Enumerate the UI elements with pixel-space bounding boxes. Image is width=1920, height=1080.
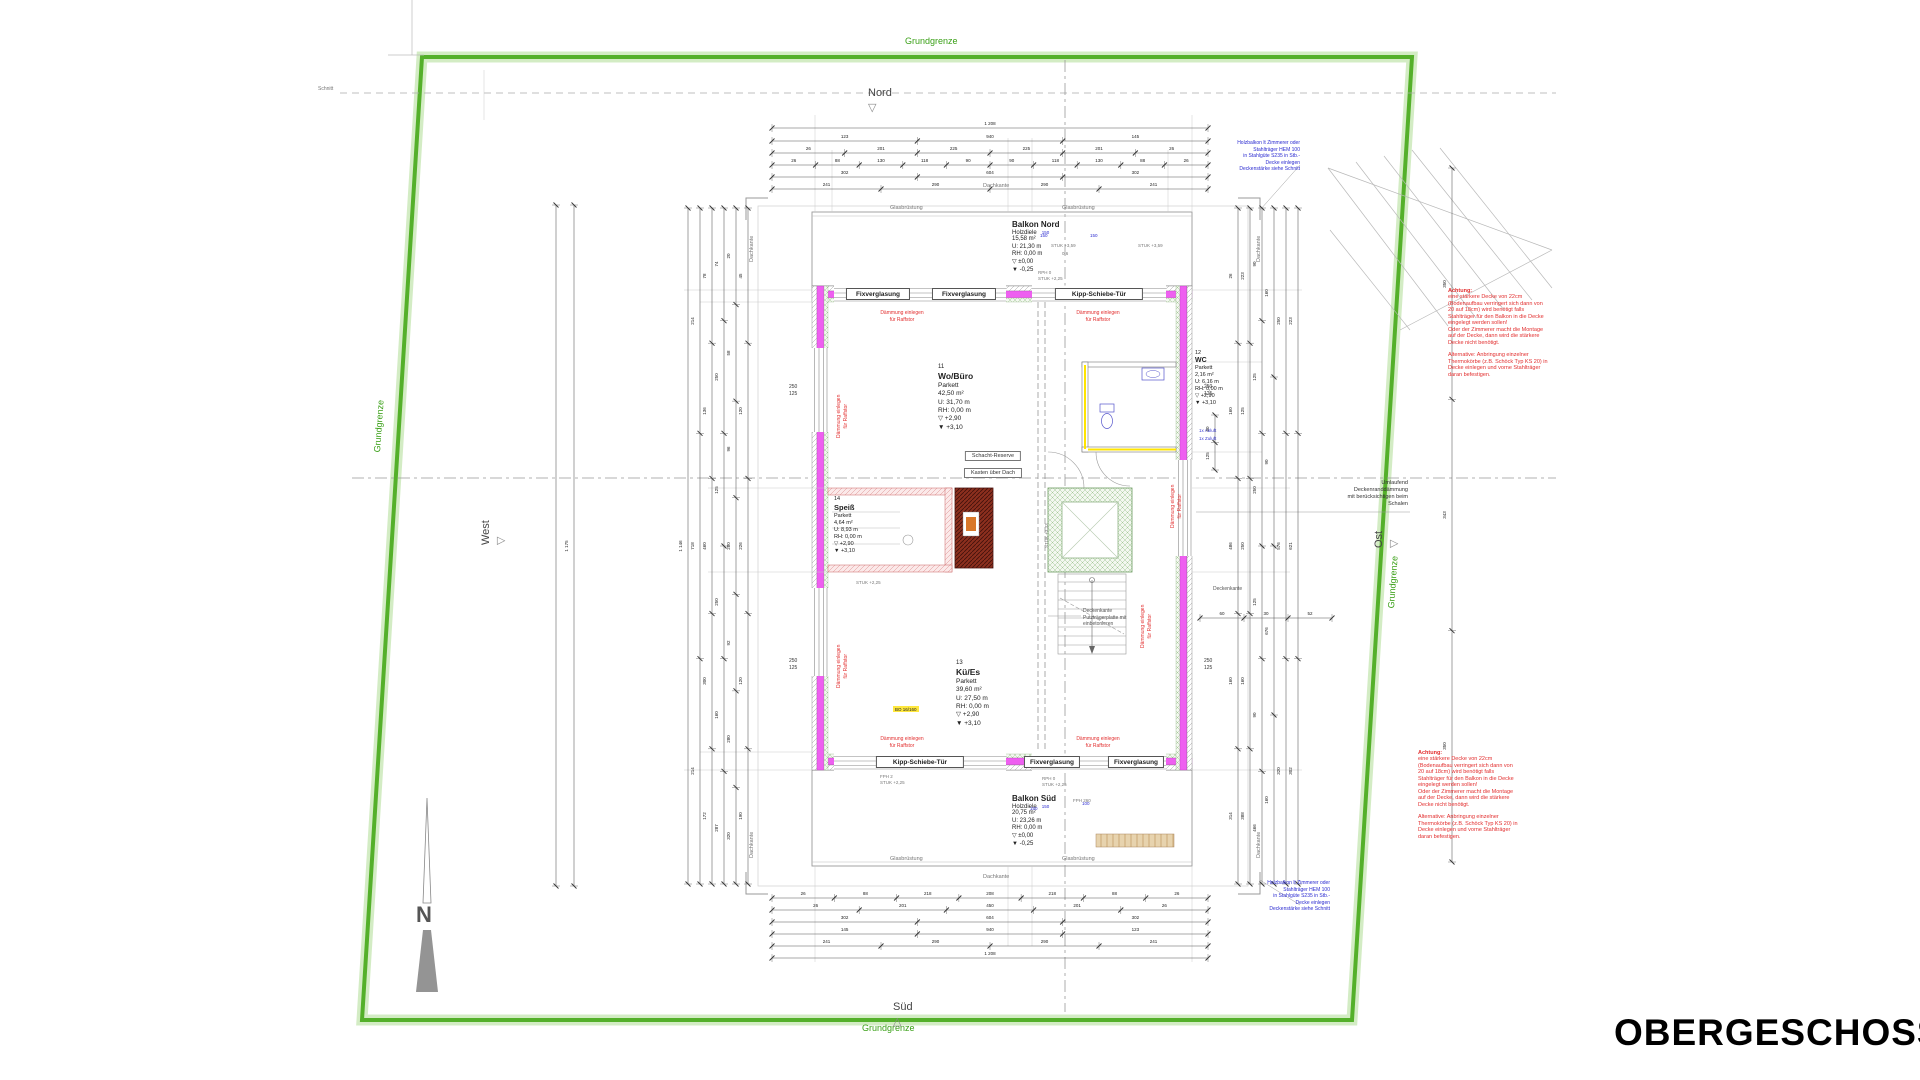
dimension-label: 190 [738,813,744,821]
east-label: Ost [1373,531,1385,548]
stuk-225: STUK +2,25 [856,580,881,586]
num-100: 100 [1082,801,1090,807]
room-name: Wo/Büro [938,371,973,381]
achtung-body: eine stärkere Decke von 22cm (Bodenaufba… [1448,294,1570,346]
dimension-label: 1 208 [984,951,995,957]
north-marker-icon: ▽ [868,102,876,114]
dimension-label: 160 [1240,677,1246,685]
rph-stuk-bottom: RPH 0 STUK +2,25 [1042,776,1067,788]
kasten-box: Kasten über Dach [964,468,1022,478]
glasbruestung-sw: Glasbrüstung [890,856,923,863]
dimension-label: 223 [1288,317,1294,325]
dimension-label: 1 208 [984,121,995,127]
dimension-label: 226 [738,542,744,550]
dimension-label: 343 [1442,511,1448,519]
wc-room [1082,362,1176,486]
dimension-label: 26 [813,903,818,909]
daemmung-note-3: Dämmung einlegen für Raffstor [880,736,923,749]
dimension-label: 118 [1052,158,1059,164]
west-label: West [480,520,492,545]
dimension-label: 90 [1252,712,1258,717]
dimension-label: 225 [1023,146,1031,152]
dimension-label: 201 [1073,903,1081,909]
dimension-label: 940 [986,927,994,933]
achtung-note-2: Achtung: eine stärkere Decke von 22cm (B… [1418,750,1540,840]
dimension-label: 388 [1240,813,1246,821]
room-name: Speiß [834,503,862,512]
dimension-label: 160 [1264,796,1270,804]
shaft [1048,488,1132,572]
dimension-label: 466 [1252,824,1258,832]
dimension-label: 172 [702,813,708,821]
zuluft-label: 1x Zuluft [1199,436,1216,442]
floor-plan-linework [0,0,1920,1080]
dimension-label: 280 [726,542,732,550]
south-label: Süd [893,1001,913,1013]
dimension-label: 460 [702,542,708,550]
dimension-label: 250 [1276,317,1282,325]
glasbruestung-ne: Glasbrüstung [1062,205,1095,212]
dimension-label: 125 [1252,599,1258,607]
chimney [955,488,993,568]
glasbruestung-nw: Glasbrüstung [890,205,923,212]
compass-west: West ▽ [465,520,508,545]
dimension-label: 92 [726,640,732,645]
north-arrow-letter: N [416,902,432,928]
dimension-label: 223 [1240,272,1246,280]
dimension-label: 486 [1228,542,1234,550]
dimension-label: 26 [1162,903,1167,909]
balcony-bench [1096,834,1174,847]
room-name: Kü/Es [956,667,989,677]
dimension-label: 136 [702,407,708,415]
wc-sink [1142,368,1164,380]
dim-250-125-4: 250 125 [1204,658,1212,671]
dim-250-125-1: 250 125 [789,384,797,397]
north-label: Nord [868,87,892,99]
dimension-label: 125 [714,486,720,494]
schnitt-label: Schnitt [318,86,333,93]
dachkante-right-top: Dachkante [1256,236,1263,262]
north-arrow [416,798,438,992]
achtung-alternative: Alternative: Anbringung einzelner Thermo… [1448,352,1570,378]
bo-chip: BO 16/160 [893,706,919,712]
dimension-label: 302 [1132,915,1140,921]
stuk-359-2: STUK +3,59 [1138,243,1163,249]
dimension-label: 30 [1263,611,1268,617]
property-boundary [362,57,1412,1020]
dimension-label: 120 [738,407,744,415]
wc-toilet [1100,404,1114,412]
dimension-label: 125 [1240,407,1246,415]
num-150-1: 150 [1040,233,1048,239]
dim-250-125-2: 250 125 [789,658,797,671]
dimension-label: 250 [714,599,720,607]
stuk-333: STUK +3,33 [1044,523,1050,548]
balcony-north [812,212,1192,286]
dimension-label: 302 [841,915,849,921]
dimension-label: 26 [801,891,806,897]
dimension-label: 160 [1264,289,1270,297]
dimension-label: 90 [966,158,971,164]
daemmung-rot-2: Dämmung einlegen für Raffstor [836,645,849,688]
dimension-label: 120 [738,677,744,685]
dimension-label: 90 [1264,459,1270,464]
dimension-label: 676 [1264,627,1270,635]
dachkante-left-bottom: Dachkante [749,832,756,858]
dachkante-bottom: Dachkante [983,874,1009,881]
dimension-label: 604 [986,915,994,921]
dimension-label: 320 [726,832,732,840]
dimension-label: 218 [1049,891,1057,897]
dimension-label: 350 [1442,743,1448,751]
compass-north: Nord ▽ [868,72,892,115]
compass-east: Ost ▽ [1358,531,1401,548]
num-150-2: 150 [1090,233,1098,239]
room-kue-es: 13 Kü/Es Parkett 39,60 m² U: 27,50 m RH:… [956,660,989,728]
dimension-label: 78 [702,273,708,278]
dimension-label: 241 [1150,939,1158,945]
dimension-label: 26 [1184,158,1189,164]
dimension-label: 241 [823,182,831,188]
dimension-label: 88 [863,891,868,897]
deckenkante-note: Deckenkante [1213,586,1242,593]
dimension-label: 320 [1276,768,1282,776]
room-number: 14 [834,496,862,502]
wall-left [812,286,829,770]
dimension-label: 201 [877,146,885,152]
dimension-label: 621 [1288,542,1294,550]
flue-core [966,517,976,531]
dimension-label: 350 [1442,280,1448,288]
room-info: Parkett 39,60 m² U: 27,50 m RH: 0,00 m ▽… [956,678,989,728]
dimension-label: 214 [690,317,696,325]
dimension-label: 118 [921,158,928,164]
dimension-label: 300 [702,677,708,685]
dimension-label: 250 [714,373,720,381]
room-info: 15,58 m² U: 21,30 m RH: 0,00 m ▽ ±0,00 ▼… [1012,236,1060,274]
daemmung-note-4: Dämmung einlegen für Raffstor [1076,736,1119,749]
dimension-label: 604 [986,170,994,176]
dimension-label: 287 [714,824,720,832]
west-marker-icon: ▽ [495,537,507,545]
dimension-label: 314 [1228,813,1234,821]
dimension-label: 145 [1132,134,1140,140]
dimension-label: 26 [1228,273,1234,278]
dimension-label: 160 [714,711,720,719]
stuk-359-1: STUK +3,59 [1051,243,1076,249]
dimension-label: 225 [950,146,958,152]
dimension-label: 88 [835,158,840,164]
dim-250-125-3: 250 125 [1204,384,1212,397]
wc-door-swing [1096,452,1130,486]
glasbruestung-se: Glasbrüstung [1062,856,1095,863]
window-fix-1: Fixverglasung [846,288,910,300]
dimension-label: 123 [841,134,849,140]
window-fix-2: Fixverglasung [932,288,996,300]
room-wo-buero: 11 Wo/Büro Parkett 42,50 m² U: 31,70 m R… [938,364,973,432]
dimension-label: 90 [1252,262,1258,267]
dimension-label: 26 [1174,891,1179,897]
room-name: Balkon Nord [1012,220,1060,229]
sheet-title: OBERGESCHOSS [1614,1012,1920,1054]
dimension-label: 58 [726,350,732,355]
east-marker-icon: ▽ [1388,540,1400,548]
achtung-alternative: Alternative: Anbringung einzelner Thermo… [1418,814,1540,840]
dachkante-left-top: Dachkante [749,236,756,262]
num-150-3: 150 [1030,806,1038,812]
wall-right [1176,286,1193,770]
dimension-label: 940 [986,134,994,140]
room-name: Balkon Süd [1012,794,1056,803]
dimension-label: 302 [841,170,849,176]
dimension-label: 450 [986,903,994,909]
dimension-label: 241 [823,939,831,945]
dimension-label: 45 [738,273,744,278]
dimension-label: 290 [932,939,940,945]
window-fix-4: Fixverglasung [1108,756,1164,768]
dimension-label: 208 [986,891,994,897]
dimension-label: 718 [690,542,696,550]
dimension-label: 302 [1132,170,1140,176]
dimension-label: 218 [924,891,932,897]
deckenkante-putz-note: Deckenkante Putzträgerplatte mit einbeto… [1083,608,1126,628]
dimension-label: 160 [1228,677,1234,685]
south-marker-icon: △ [893,1016,901,1028]
dimension-label: 280 [726,735,732,743]
dimension-label: 250 [1252,486,1258,494]
balcony-south [812,770,1192,866]
daemmung-rot-3: Dämmung einlegen für Raffstor [1170,485,1183,528]
dimension-label: 26 [1169,146,1174,152]
room-number: 12 [1195,350,1223,356]
room-balkon-sued: Balkon Süd Holzdiele150 20,75 m² U: 23,2… [1012,794,1056,848]
dimension-label: 250 [1240,542,1246,550]
room-name: WC [1195,357,1223,364]
deckenrand-note: Umlaufend Deckenranddämmung mit berücksi… [1316,480,1408,509]
dimension-label: 130 [1095,158,1103,164]
achtung-note-1: Achtung: eine stärkere Decke von 22cm (B… [1448,288,1570,378]
dachkante-top: Dachkante [983,183,1009,190]
achtung-body: eine stärkere Decke von 22cm (Bodenaufba… [1418,756,1540,808]
dimension-label: 26 [791,158,796,164]
fph-stuk: FPH 2 STUK +2,25 [880,774,905,786]
dimension-label: 88 [1140,158,1145,164]
daemmung-note-2: Dämmung einlegen für Raffstor [1076,310,1119,323]
room-wc: 12 WC Parkett 2,16 m² U: 6,16 m RH: 0,00… [1195,350,1223,407]
dimension-label: 1 146 [678,540,684,551]
dimension-label: 201 [1095,146,1103,152]
room-info: Parkett 42,50 m² U: 31,70 m RH: 0,00 m ▽… [938,382,973,432]
door-kipp-bottom: Kipp-Schiebe-Tür [876,756,964,768]
room-number: 13 [956,660,989,666]
door-kipp-top: Kipp-Schiebe-Tür [1055,288,1143,300]
dimension-label: 125 [1205,452,1211,460]
schacht-reserve-box: Schacht-Reserve [965,451,1021,461]
rph-stuk-top: RPH 0 STUK +2,25 [1038,270,1063,282]
dimension-label: 125 [1252,373,1258,381]
dimension-label: 201 [899,903,907,909]
dimension-label: 90 [1205,426,1211,431]
holzbalkon-note-top: Holzbalkon lt Zimmerer oder Stahlträger … [1208,140,1300,173]
dimension-label: 214 [690,768,696,776]
wc-yellow-wall2 [1088,449,1176,451]
room-speiss: 14 Speiß Parkett 4,64 m² U: 8,93 m RH: 0… [834,496,862,555]
dimension-label: 96 [726,447,732,452]
room-number: 11 [938,364,973,370]
dimension-label: 576 [1276,542,1282,550]
dimension-label: 290 [1041,182,1049,188]
window-fix-3: Fixverglasung [1024,756,1080,768]
dimension-label: 88 [1112,891,1117,897]
daemmung-rot-4: Dämmung einlegen für Raffstor [1140,605,1153,648]
room-info: 20,75 m² U: 23,26 m RH: 0,00 m ▽ ±0,00 ▼… [1012,810,1056,848]
room-info: Parkett 4,64 m² U: 8,93 m RH: 0,00 m ▽ +… [834,513,862,555]
dimension-label: 60 [1219,611,1224,617]
compass-south: Süd △ [893,986,913,1029]
grundgrenze-top: Grundgrenze [905,36,958,48]
dimension-label: 145 [841,927,849,933]
dimension-label: 52 [1307,611,1312,617]
daemmung-note-1: Dämmung einlegen für Raffstor [880,310,923,323]
dimension-label: 290 [1041,939,1049,945]
holzbalkon-note-bottom: Holzbalkon lt Zimmerer oder Stahlträger … [1238,880,1330,913]
door-swing [1048,452,1084,488]
dimension-label: 90 [1009,158,1014,164]
dimension-label: 20 [726,254,732,259]
wc-yellow-wall [1084,365,1086,449]
dimension-label: 160 [1228,407,1234,415]
daemmung-rot-1: Dämmung einlegen für Raffstor [836,395,849,438]
dimension-label: 130 [877,158,885,164]
dimension-label: 26 [806,146,811,152]
room-floor-size: 150 [1042,804,1050,809]
stuk-359-sub: 0,6 [1062,251,1068,257]
dimension-label: 302 [1288,768,1294,776]
stair-arrow [1089,646,1095,654]
dachkante-right-bottom: Dachkante [1256,832,1263,858]
dimension-label: 1 175 [564,540,570,551]
dimension-label: 123 [1132,927,1140,933]
dimension-label: 74 [714,262,720,267]
dimension-label: 241 [1150,182,1158,188]
floor-plan-sheet: Grundgrenze Grundgrenze Grundgrenze Grun… [0,0,1920,1080]
dimension-label: 290 [932,182,940,188]
